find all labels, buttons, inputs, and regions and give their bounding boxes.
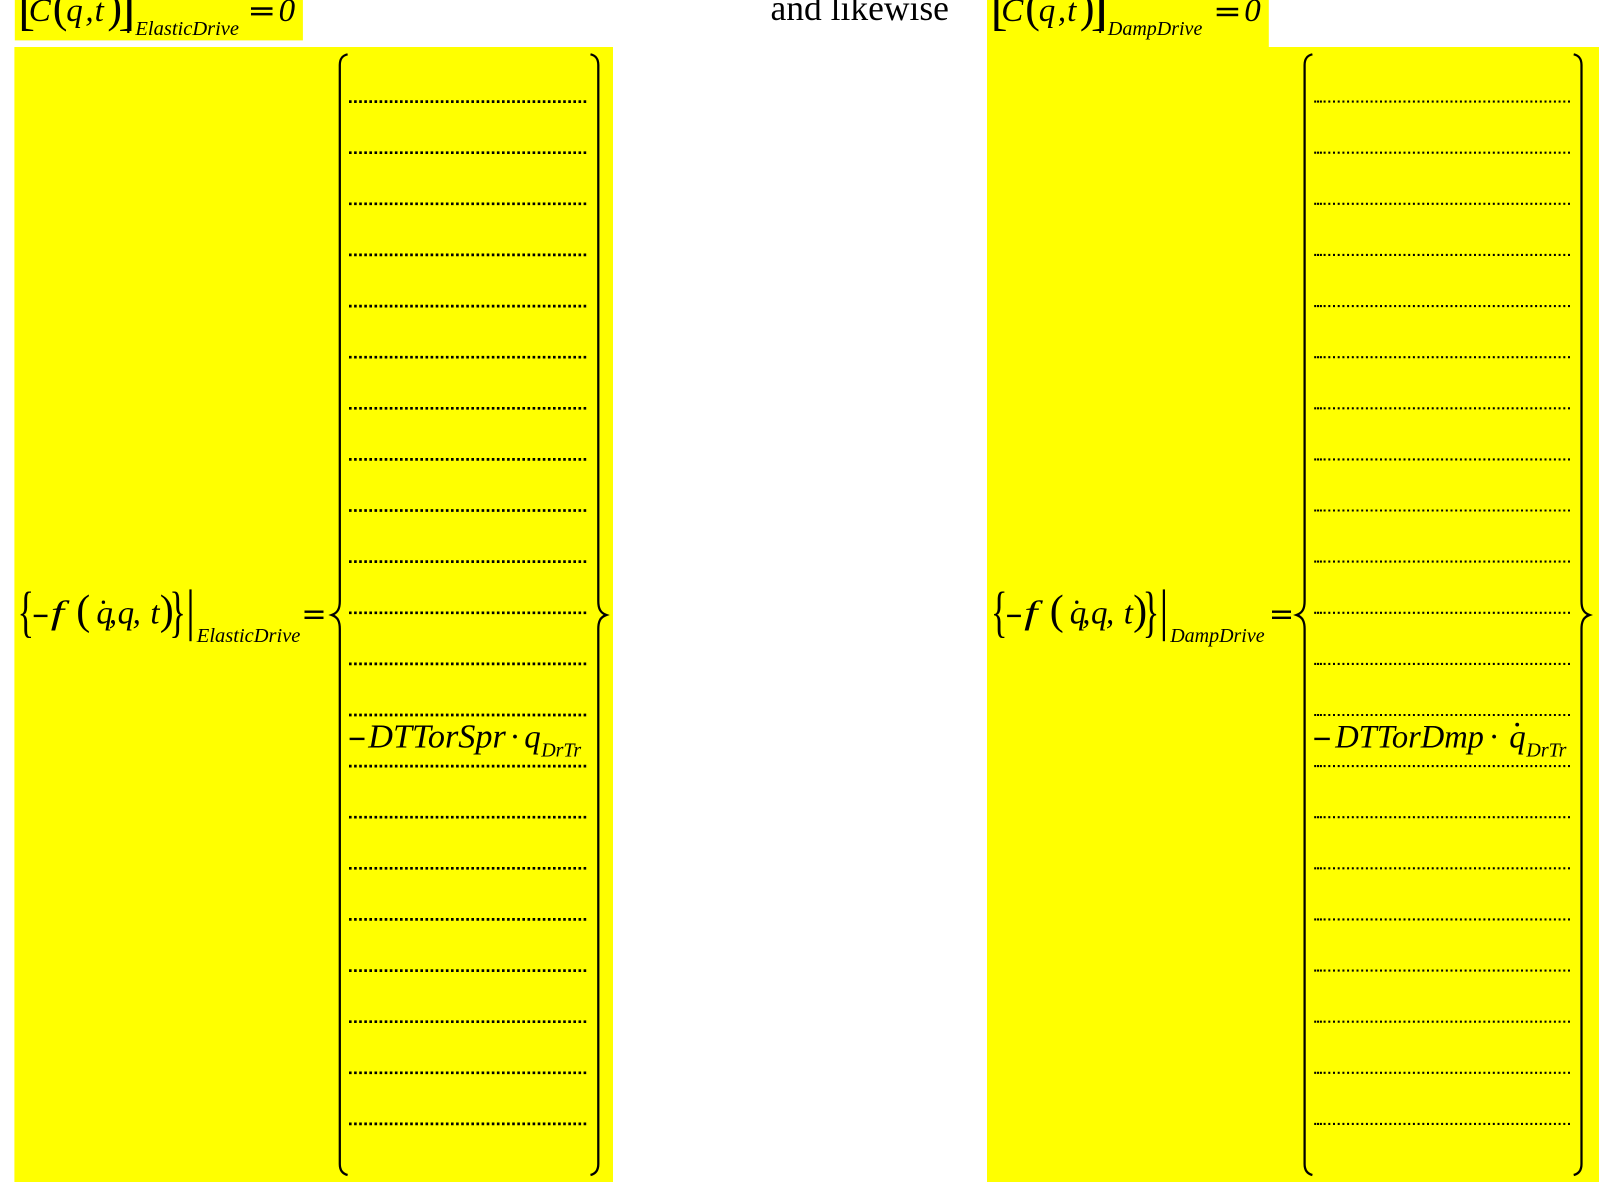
- svg-text:ElasticDrive: ElasticDrive: [196, 625, 301, 647]
- svg-text:DrTr: DrTr: [1525, 740, 1566, 762]
- svg-text:DampDrive: DampDrive: [1169, 625, 1265, 647]
- svg-text:(: (: [1025, 0, 1040, 32]
- svg-text:DTTorDmp: DTTorDmp: [1334, 720, 1484, 756]
- svg-text:and likewise: and likewise: [771, 0, 949, 28]
- svg-text:}: }: [169, 581, 186, 644]
- svg-text:{: {: [18, 581, 35, 644]
- svg-text:(: (: [53, 0, 68, 32]
- svg-text:C: C: [1001, 0, 1024, 29]
- svg-text:·: ·: [510, 720, 521, 756]
- svg-text:,: ,: [109, 596, 117, 632]
- svg-text:]: ]: [1091, 0, 1108, 36]
- svg-text:,: ,: [133, 596, 141, 632]
- svg-text:q: q: [1039, 0, 1056, 29]
- svg-text:DrTr: DrTr: [540, 740, 581, 762]
- svg-text:t: t: [1067, 0, 1077, 29]
- svg-text:t: t: [95, 0, 105, 29]
- svg-text:ElasticDrive: ElasticDrive: [134, 18, 239, 40]
- svg-text:·: ·: [1489, 720, 1500, 756]
- svg-text:q: q: [66, 0, 83, 29]
- svg-text:]: ]: [118, 0, 135, 36]
- svg-text:,: ,: [85, 0, 93, 29]
- svg-text:0: 0: [1244, 0, 1261, 29]
- svg-text:q: q: [524, 720, 541, 756]
- svg-text:(: (: [1050, 588, 1064, 634]
- svg-text:}: }: [1143, 581, 1160, 644]
- svg-text:,: ,: [1106, 596, 1114, 632]
- svg-text:,: ,: [1058, 0, 1066, 29]
- svg-text:DTTorSpr: DTTorSpr: [367, 719, 506, 756]
- svg-text:DampDrive: DampDrive: [1107, 18, 1203, 40]
- svg-text:{: {: [991, 581, 1008, 644]
- svg-text:0: 0: [279, 0, 296, 29]
- svg-text:,: ,: [1082, 596, 1090, 632]
- svg-text:C: C: [29, 0, 52, 29]
- svg-text:(: (: [76, 588, 90, 634]
